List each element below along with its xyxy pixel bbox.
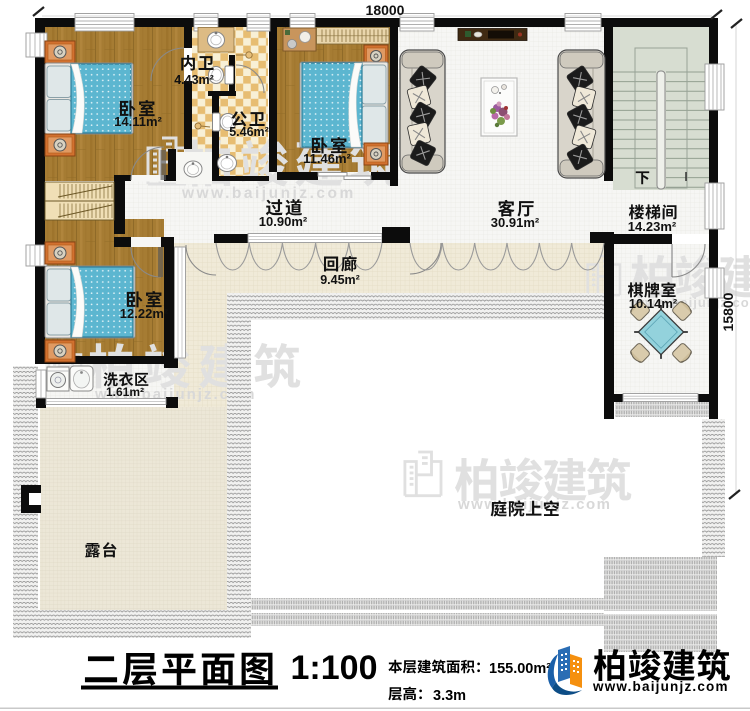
svg-text:11.46m²: 11.46m² bbox=[303, 151, 351, 166]
svg-text:9.45m²: 9.45m² bbox=[320, 273, 360, 287]
svg-text:4.43m²: 4.43m² bbox=[174, 73, 214, 87]
svg-text:12.22m²: 12.22m² bbox=[120, 306, 169, 321]
svg-text:14.11m²: 14.11m² bbox=[114, 114, 162, 129]
svg-text:10.14m²: 10.14m² bbox=[629, 296, 678, 311]
svg-text:www.baijunjz.com: www.baijunjz.com bbox=[592, 679, 729, 694]
svg-text:30.91m²: 30.91m² bbox=[491, 215, 540, 230]
svg-text:www.baijunjz.com: www.baijunjz.com bbox=[181, 185, 356, 202]
svg-text:1:100: 1:100 bbox=[291, 649, 378, 687]
svg-text:14.23m²: 14.23m² bbox=[628, 219, 677, 234]
svg-text:155.00m²: 155.00m² bbox=[489, 661, 551, 677]
svg-text:5.46m²: 5.46m² bbox=[229, 125, 269, 139]
svg-text:18000: 18000 bbox=[366, 2, 405, 18]
svg-text:10.90m²: 10.90m² bbox=[259, 214, 308, 229]
svg-text:1.61m²: 1.61m² bbox=[106, 385, 144, 399]
svg-text:15800: 15800 bbox=[720, 292, 736, 331]
svg-text:3.3m: 3.3m bbox=[433, 688, 466, 704]
